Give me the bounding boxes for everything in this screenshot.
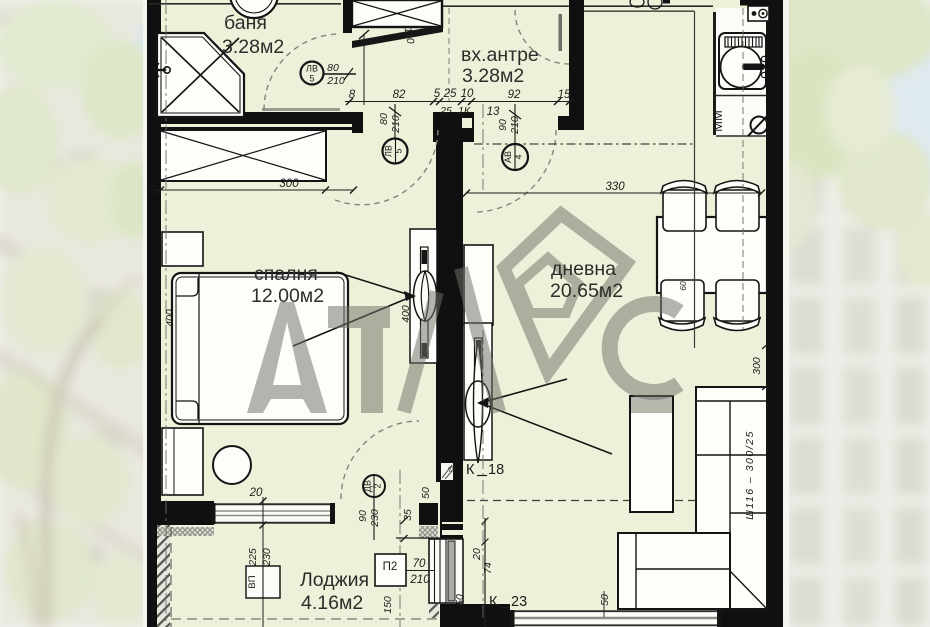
svg-text:18: 18 — [488, 462, 504, 478]
svg-text:230: 230 — [261, 548, 273, 567]
svg-text:ВП: ВП — [247, 575, 258, 588]
svg-text:20: 20 — [249, 487, 263, 499]
svg-text:92: 92 — [508, 89, 521, 101]
svg-text:ДВ: ДВ — [363, 480, 373, 492]
svg-text:80: 80 — [327, 62, 339, 74]
svg-text:спалня: спалня — [254, 263, 318, 285]
svg-text:15: 15 — [558, 89, 571, 101]
svg-text:225: 225 — [247, 548, 259, 567]
svg-text:13: 13 — [487, 106, 500, 118]
svg-text:210: 210 — [409, 574, 430, 586]
svg-text:330: 330 — [605, 181, 625, 193]
svg-text:2: 2 — [373, 483, 383, 488]
svg-text:210: 210 — [326, 75, 345, 87]
svg-text:300: 300 — [751, 357, 763, 375]
svg-text:70: 70 — [413, 558, 426, 570]
svg-text:50: 50 — [420, 487, 432, 499]
svg-text:23: 23 — [511, 594, 527, 610]
svg-text:4.16м2: 4.16м2 — [301, 592, 363, 614]
svg-text:60: 60 — [678, 281, 688, 291]
svg-text:3.28м2: 3.28м2 — [462, 65, 524, 87]
svg-text:вх.антре: вх.антре — [461, 44, 539, 66]
svg-text:20.65м2: 20.65м2 — [550, 280, 623, 302]
svg-text:80: 80 — [378, 113, 390, 125]
svg-text:АВ: АВ — [503, 151, 513, 163]
svg-text:баня: баня — [224, 12, 267, 34]
svg-text:82: 82 — [393, 89, 406, 101]
svg-text:400: 400 — [164, 309, 176, 327]
svg-text:10: 10 — [461, 88, 474, 100]
svg-text:90: 90 — [357, 510, 369, 522]
svg-text:74: 74 — [482, 562, 494, 574]
svg-text:230: 230 — [369, 509, 381, 528]
svg-text:210: 210 — [509, 116, 521, 135]
svg-text:К: К — [489, 594, 498, 610]
svg-text:К: К — [466, 462, 475, 478]
svg-text:8: 8 — [349, 89, 356, 101]
svg-text:Ш116 – 300/25: Ш116 – 300/25 — [744, 430, 756, 520]
svg-text:Лоджия: Лоджия — [300, 569, 369, 591]
svg-text:20: 20 — [471, 548, 483, 561]
svg-text:ЛВ: ЛВ — [306, 64, 318, 74]
svg-text:5: 5 — [434, 88, 441, 100]
svg-text:50: 50 — [599, 594, 611, 606]
svg-text:25: 25 — [443, 88, 457, 100]
svg-text:3.28м2: 3.28м2 — [222, 36, 284, 58]
svg-text:90: 90 — [497, 119, 509, 131]
svg-text:35: 35 — [402, 509, 414, 521]
svg-text:1К: 1К — [458, 105, 471, 117]
svg-text:150: 150 — [382, 596, 394, 614]
svg-text:4: 4 — [514, 154, 524, 159]
svg-text:25: 25 — [439, 105, 452, 117]
svg-text:50: 50 — [454, 594, 466, 606]
svg-text:5: 5 — [309, 74, 314, 84]
svg-text:12.00м2: 12.00м2 — [251, 285, 324, 307]
svg-text:5: 5 — [394, 148, 404, 153]
svg-text:ЛВ: ЛВ — [384, 145, 394, 157]
svg-text:210: 210 — [390, 115, 402, 134]
svg-text:300: 300 — [279, 178, 299, 190]
svg-text:400: 400 — [400, 305, 412, 323]
svg-text:П2: П2 — [383, 561, 398, 573]
svg-text:ММ: ММ — [710, 110, 725, 132]
svg-text:дневна: дневна — [551, 258, 616, 280]
